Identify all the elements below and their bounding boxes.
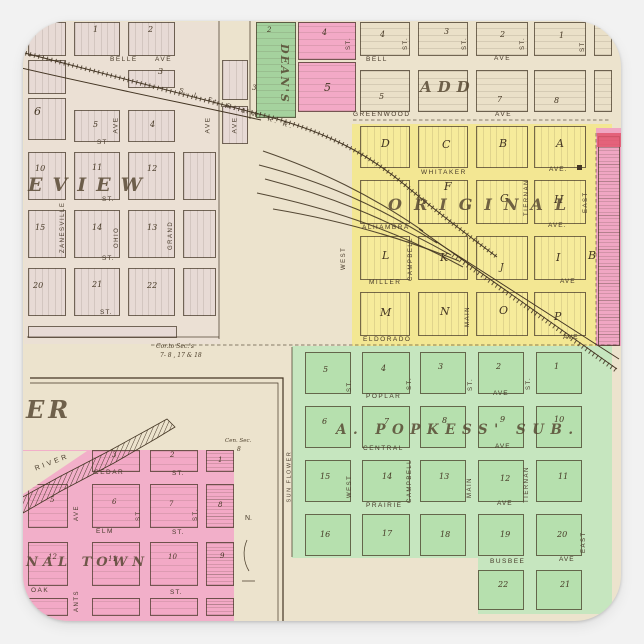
label-4: 4 [380,31,385,39]
label-ave: AVE [497,501,513,508]
town-block [222,60,248,100]
label-20: 20 [33,282,43,290]
label-cor-to-sec-s: Cor.to Sec.'s [156,344,194,350]
label-21: 21 [560,581,570,589]
label-campbell: CAMPBELL [408,237,414,281]
label-14: 14 [382,473,392,481]
label-o: O [499,305,508,316]
label-10: 10 [35,165,45,173]
town-block [362,352,410,394]
label-5: 5 [93,121,98,129]
label-2: 2 [170,452,174,459]
label-er: ER [26,398,72,422]
town-block [536,570,582,610]
town-block [183,268,216,316]
town-block [420,352,466,394]
town-block [28,60,66,94]
label-ave: AVE [493,391,509,398]
label-2: 2 [500,31,505,39]
label-ave: AVE [494,56,511,63]
label-st: ST. [520,37,526,50]
plat-region [23,450,234,621]
label-ave: AVE [74,505,80,521]
label-d: D [381,138,390,149]
label-ave: AVE [495,444,511,451]
town-block [478,352,524,394]
label-9: 9 [220,553,224,560]
label-m: M [380,307,391,318]
label-18: 18 [440,531,450,539]
label-west: WEST [341,247,347,270]
town-block [128,268,175,316]
label-1: 1 [554,363,559,371]
label-6: 6 [322,418,327,426]
label-ave: AVE [155,57,172,64]
label-prairie: PRAIRIE [366,503,403,510]
town-block [28,268,66,316]
label-19: 19 [500,531,510,539]
label-3: 3 [112,452,116,459]
label-east: EAST [581,531,587,553]
label-11: 11 [558,473,568,481]
label-6: 6 [34,106,41,117]
town-block [360,70,410,112]
label-5: 5 [379,93,384,101]
town-block [536,460,582,502]
town-block [305,460,351,502]
label-st: ST. [102,256,114,263]
town-block [534,70,586,112]
label-6: 6 [112,499,116,506]
label-21: 21 [92,281,102,289]
label-campbell: CAMPBELL [407,459,413,503]
town-block [206,598,234,616]
town-block [476,236,528,280]
label-st: ST. [172,471,184,478]
label-8: 8 [218,502,222,509]
label-15: 15 [35,224,45,232]
label-11: 11 [92,164,102,172]
label-cen-sec: Cen. Sec. [225,439,251,445]
label-grand: GRAND [168,221,174,250]
label-n: N [440,306,450,317]
label-22: 22 [147,282,157,290]
label-2: 2 [148,26,153,34]
label-i: I [556,252,560,263]
label-3: 3 [444,28,449,36]
label-f: F [444,181,452,192]
label-4: 4 [381,365,386,373]
label-4: 4 [322,29,327,37]
label-7: 7 [169,501,173,508]
label-central: CENTRAL [363,446,404,453]
label-ave: AVE [233,116,240,133]
label-bell: BELL [366,57,388,64]
label-j: J [500,264,504,273]
town-block [183,152,216,200]
label-st: ST. [403,37,409,50]
label-st: ST. [136,508,142,521]
label-main: MAIN [465,306,471,327]
label-whitaker: WHITAKER [421,170,467,177]
label-main: MAIN [467,477,473,498]
label-st: ST. [462,37,468,50]
label-ave: AVE [563,335,579,342]
label-2: 2 [267,27,271,34]
label-8: 8 [554,97,559,105]
label-st: ST. [193,508,199,521]
label-st: ST. [407,377,413,390]
town-block [183,210,216,258]
label-4: 4 [150,121,155,129]
town-block [420,460,466,502]
label-belle: BELLE [110,57,138,64]
label-5: 5 [324,82,331,93]
label-12: 12 [147,165,157,173]
label-5: 5 [323,366,328,374]
label-ants: ANTS [74,590,80,612]
town-block [362,460,410,502]
label-greenwood: GREENWOOD [353,112,411,119]
label-st: ST. [346,37,352,50]
label-dean-s: DEAN'S [279,44,290,104]
label-sun-flower: SUN FLOWER [288,450,294,502]
label-l: L [382,250,389,261]
label-east: EAST [583,191,589,213]
label-ave: AVE. [549,167,567,174]
label-2: 2 [496,363,501,371]
label-7: 7 [497,96,502,104]
town-block [594,22,612,56]
label-13: 13 [439,473,449,481]
label-ave: AVE [495,112,512,119]
label-st: ST. [526,377,532,390]
label-7-8-17-18: 7- 8 , 17 & 18 [160,353,202,359]
label-15: 15 [320,473,330,481]
town-block [28,598,68,616]
town-block [74,268,120,316]
label-nal-town: NAL TOWN [26,556,149,569]
label-b: B [499,138,507,149]
town-block [28,484,68,528]
label-ave: AVE [206,116,213,133]
label-14: 14 [92,224,102,232]
label-tiernan: TIERNAN [524,466,530,503]
label-ave: AVE [560,279,576,286]
label-west: WEST [347,475,353,498]
label-a-popkess-sub: A. POPKESS' SUB. [336,424,580,438]
town-block [150,484,198,528]
town-block [598,136,620,346]
label-10: 10 [168,554,177,561]
label-st: ST. [102,197,114,204]
label-ave: AVE [114,116,121,133]
label-12: 12 [500,475,510,483]
label-8: 8 [237,447,241,453]
label-st: ST [97,140,107,147]
label-13: 13 [147,224,157,232]
town-block [92,484,140,528]
label-ave: AVE. [548,223,566,230]
label-p: P [554,311,561,322]
label-st: ST. [100,310,112,317]
town-block [92,598,140,616]
label-k: K [440,252,448,263]
label-ave: AVE [559,557,575,564]
label-alhambra: ALHAMBRA [362,225,410,232]
screenshot-stage: 12BELLEAVE3654ST101112EVIEWST.151413ST.2… [0,0,644,644]
label-st: ST [580,41,586,52]
town-block [418,22,468,56]
label-1: 1 [218,457,222,464]
label-1: 1 [93,26,98,34]
label-b: B [588,250,596,261]
town-block [28,326,177,338]
town-block [478,570,524,610]
map-border-line [244,540,249,571]
label-17: 17 [382,530,392,538]
town-block [128,70,175,88]
label-busbee: BUSBEE [490,559,525,566]
label-n: N. [245,515,252,522]
label-elm: ELM [96,529,114,536]
label-cedar: CEDAR [94,470,124,477]
town-block [28,22,66,56]
label-st: ST. [468,378,474,391]
town-block [206,542,234,586]
label-3: 3 [252,85,256,92]
label-a: A [556,138,564,149]
town-block [150,598,198,616]
label-eview: EVIEW [28,176,152,195]
town-block [476,70,528,112]
label-st: ST. [170,590,182,597]
label-1: 1 [559,32,564,40]
label-3: 3 [158,68,163,76]
label-poplar: POPLAR [366,394,401,401]
label-3: 3 [438,363,443,371]
label-oak: OAK [31,588,49,595]
label-22: 22 [498,581,508,589]
label-16: 16 [320,531,330,539]
label-miller: MILLER [369,280,401,287]
label-st: ST. [347,379,353,392]
label-20: 20 [557,531,567,539]
label-original: ORIGINAL [388,197,578,213]
label-add: ADD [420,80,476,95]
town-block [536,352,582,394]
label-zanesville: ZANESVILLE [60,202,66,253]
label-st: ST. [172,530,184,537]
label-ohio: OHIO [114,227,120,248]
town-block [594,70,612,112]
town-block [150,542,198,586]
label-5: 5 [50,497,54,504]
label-c: C [442,139,450,150]
map-sticker: 12BELLEAVE3654ST101112EVIEWST.151413ST.2… [23,21,621,621]
label-eldorado: ELDORADO [363,337,411,344]
